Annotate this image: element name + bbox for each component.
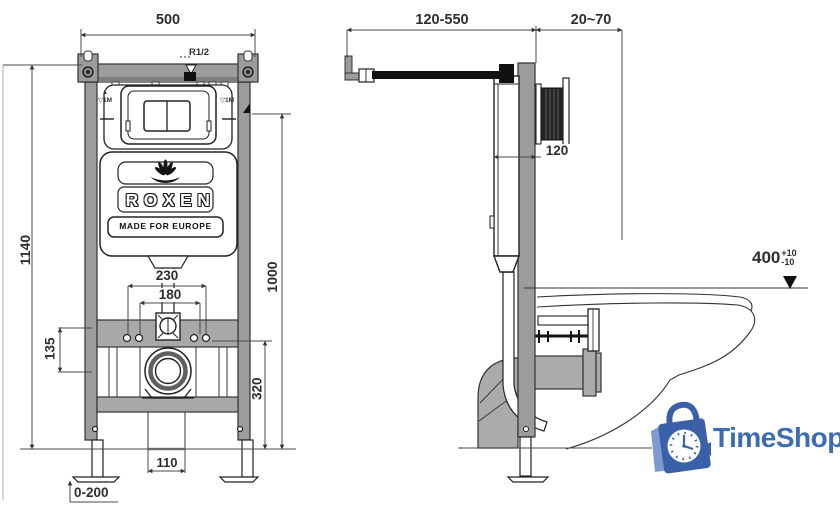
technical-drawing-page: 500 1140 R1/2 ▲ ▽1M ▽1M ROXEN MADE FOR E… [0,0,840,525]
side-view [345,26,808,482]
drain-elbow [478,349,601,448]
watermark-brand-text: TimeShop [713,424,840,452]
dim-width-label: 500 [146,13,190,28]
flush-plate-side [536,78,569,148]
dim-foot-adjust-label: 0-200 [74,486,109,500]
dim-bracket-label: 135 [43,328,57,370]
water-inlet [156,313,180,340]
datum-mark: ▲ [98,90,112,96]
water-supply-pipe [345,56,514,83]
level-mark-right-label: ▽1M [216,98,238,105]
bowl-height-tol-minus: -10 [781,258,796,267]
dim-plate-height-label: 1000 [265,254,279,300]
thread-size-label: R1/2 [189,48,209,58]
cistern-tank [490,76,519,272]
flush-plate [100,85,236,149]
front-view [3,29,296,502]
dim-wall-offset-label: 20~70 [562,13,620,28]
brand-logo-text: ROXEN [118,192,218,210]
level-mark-left-label: ▽1M [94,98,116,105]
dim-outlet-spacing-label: 110 [149,456,185,469]
dim-drain-height-label: 320 [250,368,264,410]
dim-bowl-height-label: 400+10-10 [752,249,797,266]
brand-tagline-text: MADE FOR EUROPE [108,222,223,231]
dim-height-label: 1140 [18,228,32,272]
timeshop-logo-icon [651,402,711,474]
outlet-drop-lines [148,412,185,449]
dim-bolt-outer-label: 230 [149,269,185,283]
bowl-height-value: 400 [752,248,780,267]
dim-bracket-reach-label: 120-550 [397,13,487,28]
dim-bolt-inner-label: 180 [152,288,188,302]
dim-frame-depth-label: 120 [541,144,573,158]
flush-pipe-front [148,256,188,313]
drain-outlet [142,348,194,398]
level-triangle [783,276,797,289]
